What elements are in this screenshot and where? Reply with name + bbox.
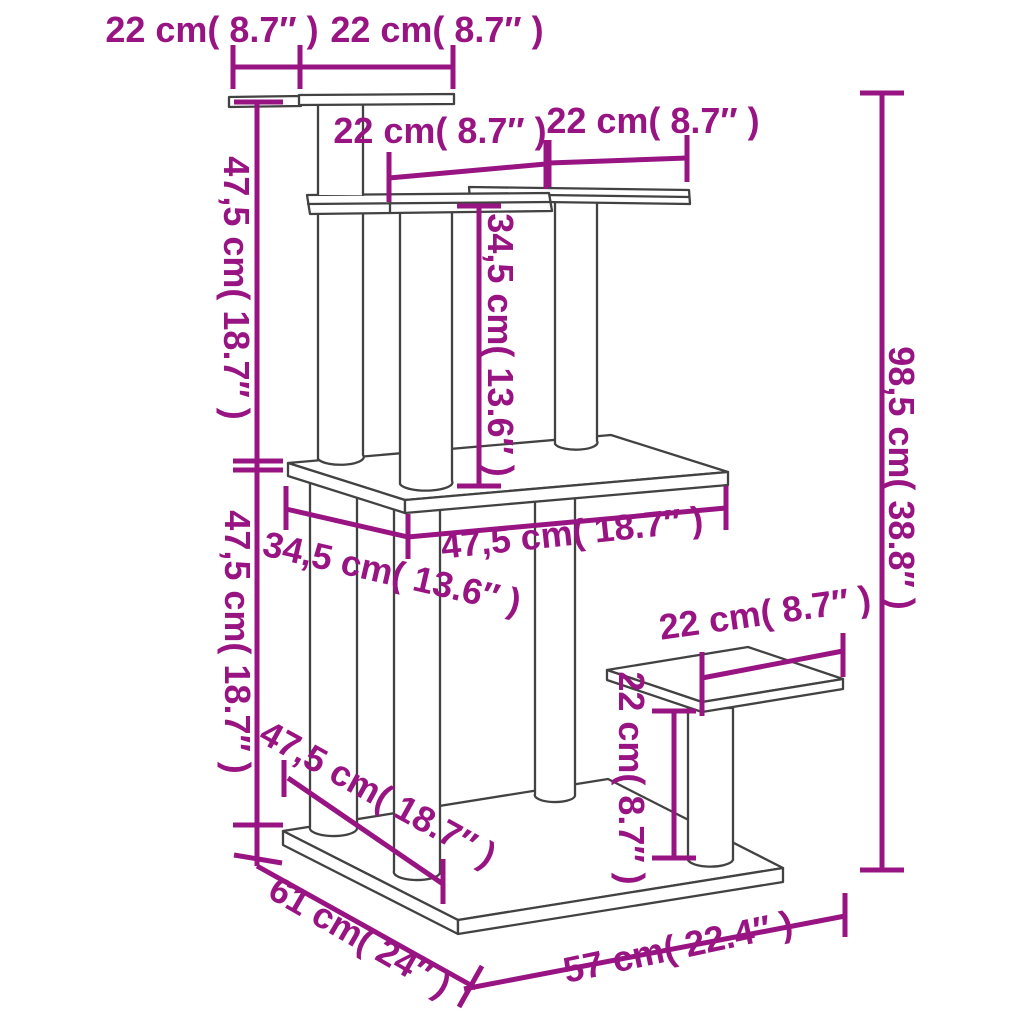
dim-shelf-width-right: 22 cm( 8.7″ ) (546, 103, 759, 139)
dim-shelf-to-platform-height: 34,5 cm( 13.6″ ) (482, 213, 518, 476)
dim-height-lower: 47,5 cm( 18.7″ ) (219, 510, 255, 773)
dim-top-width-right: 22 cm( 8.7″ ) (330, 12, 543, 48)
dim-step-height: 22 cm( 8.7″ ) (613, 671, 649, 884)
cat-tree-line-drawing (0, 0, 1024, 1024)
dimension-diagram: 22 cm( 8.7″ ) 22 cm( 8.7″ ) 22 cm( 8.7″ … (0, 0, 1024, 1024)
dim-shelf-width-left: 22 cm( 8.7″ ) (333, 113, 546, 149)
dim-height-upper: 47,5 cm( 18.7″ ) (218, 156, 254, 419)
dim-top-width-left: 22 cm( 8.7″ ) (105, 12, 318, 48)
dim-total-height: 98,5 cm( 38.8″ ) (883, 346, 919, 609)
shelf-left (307, 193, 552, 214)
